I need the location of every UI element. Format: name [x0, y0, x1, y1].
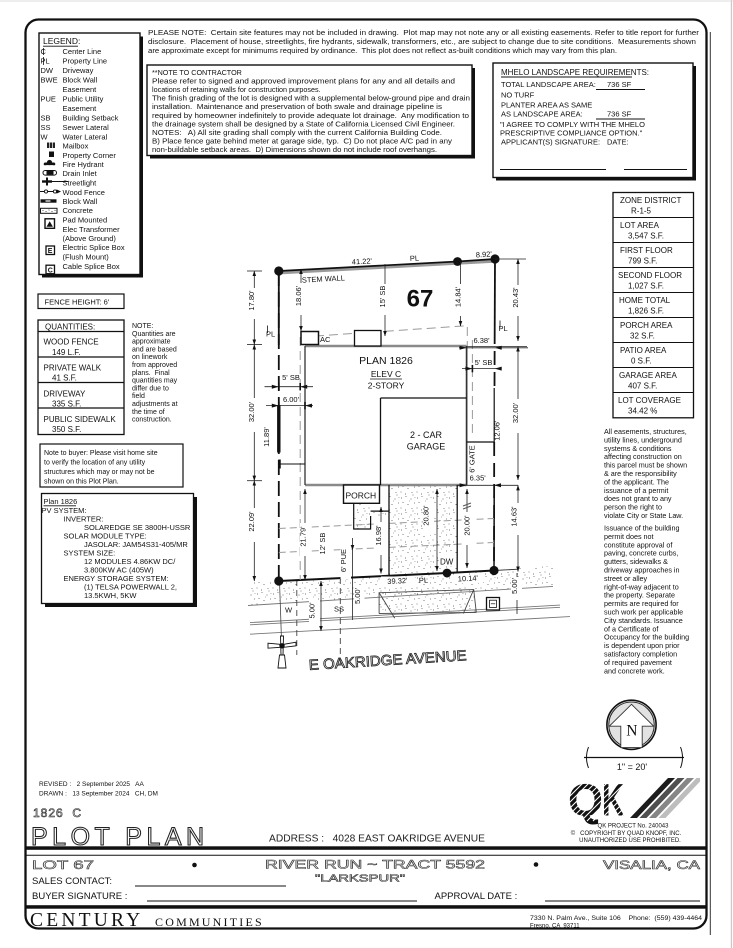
- svg-text:PATIO AREA: PATIO AREA: [620, 346, 667, 355]
- svg-text:W: W: [285, 606, 293, 615]
- svg-text:6.00': 6.00': [283, 395, 300, 404]
- svg-text:Mailbox: Mailbox: [63, 142, 89, 151]
- svg-text:12' SB: 12' SB: [318, 533, 327, 555]
- svg-text:Concrete: Concrete: [63, 206, 93, 215]
- svg-text:WOOD FENCE: WOOD FENCE: [44, 338, 99, 347]
- svg-text:SECOND FLOOR: SECOND FLOOR: [618, 271, 682, 280]
- svg-text:11.89': 11.89': [262, 427, 271, 447]
- svg-text:20.80': 20.80': [422, 505, 431, 526]
- svg-text:Sewer Lateral: Sewer Lateral: [63, 123, 110, 132]
- svg-text:PL: PL: [41, 57, 50, 66]
- svg-text:5' SB: 5' SB: [475, 358, 493, 367]
- svg-text:0 S.F.: 0 S.F.: [631, 357, 651, 366]
- svg-text:are approximate except for min: are approximate except for minimums requ…: [148, 48, 617, 55]
- svg-text:to verify the location of any: to verify the location of any utility: [44, 460, 146, 467]
- svg-text:Q: Q: [568, 775, 603, 826]
- svg-text:335 S.F.: 335 S.F.: [52, 400, 81, 409]
- svg-text:ZONE DISTRICT: ZONE DISTRICT: [620, 196, 681, 205]
- svg-text:Cable Splice Box: Cable Splice Box: [63, 262, 120, 271]
- svg-text:"LARKSPUR": "LARKSPUR": [315, 874, 406, 885]
- svg-text:6' PUE: 6' PUE: [339, 549, 348, 572]
- svg-text:differ due to: differ due to: [132, 385, 169, 392]
- svg-text:N: N: [626, 723, 637, 740]
- svg-text:Note to buyer: Please visit ho: Note to buyer: Please visit home site: [44, 450, 158, 457]
- svg-text:and concrete work.: and concrete work.: [604, 666, 665, 675]
- svg-text:LEGEND:: LEGEND:: [43, 36, 80, 46]
- svg-text:from approved: from approved: [132, 362, 177, 369]
- svg-text:DRIVEWAY: DRIVEWAY: [44, 390, 86, 399]
- svg-text:non-buildable setback areas.: non-buildable setback areas. D) Dimensio…: [152, 145, 437, 154]
- svg-text:HOME TOTAL: HOME TOTAL: [619, 296, 671, 305]
- svg-text:Building Setback: Building Setback: [63, 114, 119, 123]
- svg-text:DW: DW: [41, 66, 54, 75]
- svg-text:GARAGE AREA: GARAGE AREA: [619, 371, 677, 380]
- svg-text:1" = 20': 1" = 20': [617, 762, 647, 772]
- svg-text:RIVER RUN ~ TRACT 5592: RIVER RUN ~ TRACT 5592: [265, 860, 485, 872]
- svg-text:7330 N. Palm Ave., Suite 106: 7330 N. Palm Ave., Suite 106 Phone: (559…: [530, 916, 703, 922]
- svg-text:plans. Final: plans. Final: [132, 370, 170, 377]
- svg-text:Electric Splice Box: Electric Splice Box: [63, 243, 125, 252]
- svg-text:34.42 %: 34.42 %: [628, 407, 657, 416]
- svg-text:14.84': 14.84': [454, 286, 463, 307]
- svg-text:structures which may or may no: structures which may or may not be: [44, 469, 155, 476]
- svg-text:Wood Fence: Wood Fence: [63, 188, 105, 197]
- svg-text:67: 67: [407, 286, 434, 313]
- svg-text:22.09': 22.09': [247, 511, 256, 532]
- svg-text:PLAN 1826: PLAN 1826: [359, 355, 413, 367]
- svg-text:Fire Hydrant: Fire Hydrant: [63, 160, 105, 169]
- svg-text:736 SF: 736 SF: [607, 80, 632, 89]
- svg-text:R-1-5: R-1-5: [631, 207, 652, 216]
- svg-text:UNAUTHORIZED USE PROHIBITED.: UNAUTHORIZED USE PROHIBITED.: [579, 838, 681, 844]
- svg-text:QK PROJECT No. 240043: QK PROJECT No. 240043: [598, 824, 670, 830]
- svg-text:PL: PL: [410, 254, 420, 263]
- svg-text:LOT COVERAGE: LOT COVERAGE: [618, 396, 681, 405]
- svg-text:Center Line: Center Line: [63, 47, 102, 56]
- svg-text:32.00': 32.00': [247, 401, 256, 422]
- svg-text:COMMUNITIES: COMMUNITIES: [155, 915, 264, 929]
- svg-text:QUANTITIES:: QUANTITIES:: [45, 323, 95, 332]
- svg-text:Block Wall: Block Wall: [63, 197, 98, 206]
- svg-text:adjustments at: adjustments at: [132, 401, 178, 408]
- svg-text:Easement: Easement: [63, 104, 98, 113]
- svg-text:(Flush Mount): (Flush Mount): [63, 253, 110, 262]
- svg-text:PRESCRIPTIVE COMPLIANCE OPTION: PRESCRIPTIVE COMPLIANCE OPTION.": [500, 129, 643, 138]
- svg-text:ADDRESS : 4028 EAST OAKRIDGE: ADDRESS : 4028 EAST OAKRIDGE AVENUE: [269, 833, 485, 845]
- svg-text:shown on this Plot Plan.: shown on this Plot Plan.: [44, 479, 119, 486]
- svg-text:NO TURF: NO TURF: [501, 91, 535, 100]
- svg-text:Quantities are: Quantities are: [132, 331, 176, 338]
- svg-text:1,826 S.F.: 1,826 S.F.: [628, 307, 664, 316]
- svg-text:Public Utility: Public Utility: [63, 95, 104, 104]
- svg-text:AC: AC: [320, 335, 331, 344]
- svg-text:© COPYRIGHT BY QUAD KNOPF, I: © COPYRIGHT BY QUAD KNOPF, INC.: [571, 830, 682, 837]
- svg-text:(Above Ground): (Above Ground): [63, 234, 117, 243]
- svg-text:1826 C: 1826 C: [33, 806, 82, 820]
- svg-text:field: field: [132, 393, 145, 400]
- svg-text:disclosure. Placement of hous: disclosure. Placement of house, streetli…: [148, 39, 696, 46]
- svg-text:PRIVATE WALK: PRIVATE WALK: [44, 364, 102, 373]
- svg-text:Driveway: Driveway: [63, 66, 94, 75]
- svg-text:PLEASE NOTE: Certain site fea: PLEASE NOTE: Certain site features may n…: [148, 30, 700, 37]
- svg-text:FENCE HEIGHT: 6': FENCE HEIGHT: 6': [45, 298, 110, 307]
- svg-text:DRAWN : 13 September 2024: DRAWN : 13 September 2024 CH, DM: [39, 791, 158, 798]
- svg-text:8.92': 8.92': [476, 249, 493, 259]
- svg-text:PUE: PUE: [41, 95, 56, 104]
- svg-text:32.00': 32.00': [511, 402, 520, 423]
- svg-text:16.98': 16.98': [374, 525, 383, 546]
- svg-text:21.79': 21.79': [299, 526, 308, 547]
- svg-text:VISALIA, CA: VISALIA, CA: [603, 860, 700, 872]
- svg-text:Streetlight: Streetlight: [63, 179, 98, 188]
- svg-text:FIRST FLOOR: FIRST FLOOR: [620, 246, 673, 255]
- svg-text:2-STORY: 2-STORY: [368, 381, 405, 391]
- svg-text:18.06': 18.06': [294, 285, 303, 306]
- svg-text:5.00': 5.00': [353, 587, 362, 604]
- svg-text:SALES CONTACT:: SALES CONTACT:: [32, 876, 112, 887]
- svg-text:Property Line: Property Line: [63, 57, 108, 66]
- svg-text:5.00': 5.00': [510, 577, 519, 594]
- svg-text:6.38': 6.38': [473, 336, 490, 345]
- svg-text:Block Wall: Block Wall: [63, 76, 98, 85]
- svg-text:Elec Transformer: Elec Transformer: [63, 225, 121, 234]
- svg-text:Pad Mounted: Pad Mounted: [63, 216, 108, 225]
- svg-text:PL: PL: [419, 576, 429, 585]
- svg-text:construction.: construction.: [132, 417, 172, 424]
- svg-text:17.80': 17.80': [247, 290, 256, 311]
- svg-text:LOT AREA: LOT AREA: [620, 221, 660, 230]
- svg-text:Fresno, CA 93711: Fresno, CA 93711: [530, 923, 580, 929]
- svg-text:and are based: and are based: [132, 346, 177, 353]
- svg-text:2 - CAR: 2 - CAR: [410, 430, 443, 440]
- svg-text:GARAGE: GARAGE: [407, 442, 446, 452]
- svg-text:APPLICANT(S) SIGNATURE:: APPLICANT(S) SIGNATURE:: [501, 138, 600, 147]
- svg-text:407 S.F.: 407 S.F.: [628, 382, 657, 391]
- svg-text:1,027 S.F.: 1,027 S.F.: [628, 282, 664, 291]
- svg-text:PORCH: PORCH: [346, 491, 377, 501]
- svg-text:20.00': 20.00': [463, 515, 472, 536]
- svg-text:approximate: approximate: [132, 339, 171, 346]
- svg-text:6' GATE: 6' GATE: [468, 445, 477, 473]
- svg-text:NOTE:: NOTE:: [132, 323, 153, 330]
- svg-text:SS: SS: [334, 605, 344, 614]
- svg-text:12.06': 12.06': [493, 420, 502, 441]
- svg-text:BWE: BWE: [41, 76, 58, 85]
- svg-text:quantities may: quantities may: [132, 378, 178, 385]
- svg-text:10.14': 10.14': [458, 573, 479, 583]
- svg-text:SB: SB: [41, 114, 51, 123]
- svg-text:736 SF: 736 SF: [607, 110, 632, 119]
- svg-text:41 S.F.: 41 S.F.: [52, 374, 77, 383]
- svg-text:Property Corner: Property Corner: [63, 151, 117, 160]
- svg-text:5.00': 5.00': [308, 602, 317, 619]
- svg-text:PORCH AREA: PORCH AREA: [620, 321, 673, 330]
- svg-text:W: W: [41, 133, 49, 142]
- svg-text:PUBLIC SIDEWALK: PUBLIC SIDEWALK: [44, 415, 117, 424]
- svg-text:E: E: [48, 248, 53, 255]
- svg-text:3,547 S.F.: 3,547 S.F.: [628, 232, 664, 241]
- svg-text:14.63': 14.63': [510, 506, 519, 527]
- svg-text:20.43': 20.43': [511, 287, 520, 308]
- svg-text:32 S.F.: 32 S.F.: [630, 332, 655, 341]
- svg-text:Plan 1826: Plan 1826: [44, 497, 78, 506]
- svg-text:REVISED : 2 September 2025: REVISED : 2 September 2025 AA: [39, 781, 144, 788]
- svg-text:350 S.F.: 350 S.F.: [52, 425, 81, 434]
- svg-text:6.35': 6.35': [470, 474, 487, 483]
- svg-text:SS: SS: [41, 123, 51, 132]
- svg-text:41.22': 41.22': [352, 256, 373, 266]
- svg-text:TOTAL LANDSCAPE AREA:: TOTAL LANDSCAPE AREA:: [501, 80, 596, 89]
- svg-text:5' SB: 5' SB: [282, 373, 300, 382]
- svg-text:13.5KWH, 5KW: 13.5KWH, 5KW: [84, 591, 137, 600]
- svg-text:violate City or State Law.: violate City or State Law.: [604, 511, 683, 520]
- svg-text:MHELO LANDSCAPE REQUIREMENTS:: MHELO LANDSCAPE REQUIREMENTS:: [501, 68, 649, 77]
- svg-text:Water Lateral: Water Lateral: [63, 133, 108, 142]
- svg-text:799 S.F.: 799 S.F.: [628, 257, 657, 266]
- svg-text:APPROVAL DATE :: APPROVAL DATE :: [435, 891, 518, 902]
- svg-text:C: C: [48, 267, 53, 274]
- svg-text:39.32': 39.32': [387, 576, 408, 586]
- svg-text:Easement: Easement: [63, 85, 98, 94]
- svg-text:15' SB: 15' SB: [378, 286, 387, 308]
- svg-text:149 L.F.: 149 L.F.: [52, 348, 80, 357]
- svg-text:the time of: the time of: [132, 409, 165, 416]
- svg-text:LOT 67: LOT 67: [32, 858, 94, 872]
- svg-text:DATE:: DATE:: [607, 138, 629, 147]
- svg-text:AS LANDSCAPE AREA:: AS LANDSCAPE AREA:: [501, 110, 583, 119]
- svg-text:ELEV C: ELEV C: [371, 369, 401, 379]
- svg-text:PLANTER AREA AS SAME: PLANTER AREA AS SAME: [501, 101, 592, 110]
- svg-text:BUYER SIGNATURE :: BUYER SIGNATURE :: [32, 891, 127, 902]
- svg-text:Drain Inlet: Drain Inlet: [63, 169, 98, 178]
- svg-text:DW: DW: [440, 558, 454, 567]
- svg-text:CENTURY: CENTURY: [30, 910, 143, 931]
- svg-text:on linework: on linework: [132, 354, 168, 361]
